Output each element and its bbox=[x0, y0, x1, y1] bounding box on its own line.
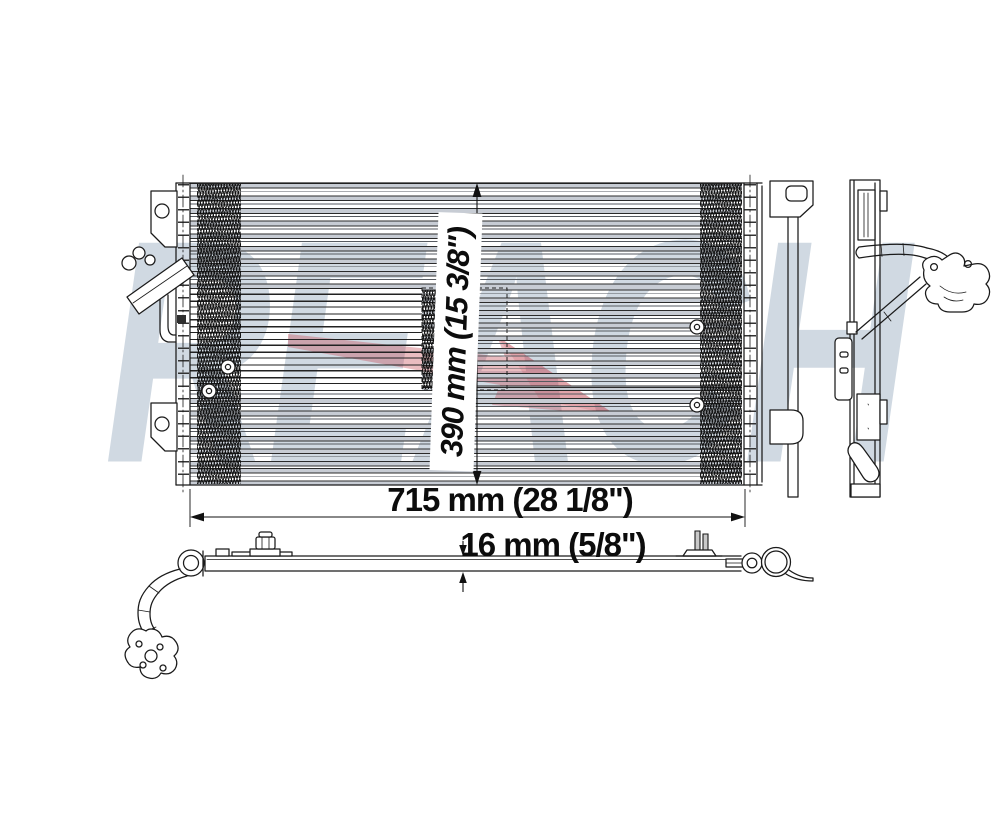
bottom-flange-block bbox=[125, 629, 178, 679]
side-hose bbox=[847, 244, 990, 340]
line-art bbox=[0, 0, 1002, 831]
width-dimension-label: 715 mm (28 1/8") bbox=[387, 481, 632, 519]
bottom-clip bbox=[676, 531, 722, 556]
side-view bbox=[835, 180, 990, 497]
side-fitting-block bbox=[923, 253, 990, 312]
bracket-bottom-right bbox=[770, 410, 803, 444]
condenser-technical-drawing: REACH bbox=[0, 0, 1002, 831]
side-pipe-stub bbox=[848, 443, 879, 482]
depth-dimension-label: 16 mm (5/8") bbox=[460, 526, 645, 564]
height-dimension-label: 390 mm (15 3/8") bbox=[430, 213, 483, 472]
inlet-hose-assembly bbox=[122, 247, 194, 342]
bracket-top-left bbox=[151, 191, 177, 247]
bottom-hose bbox=[125, 569, 187, 678]
